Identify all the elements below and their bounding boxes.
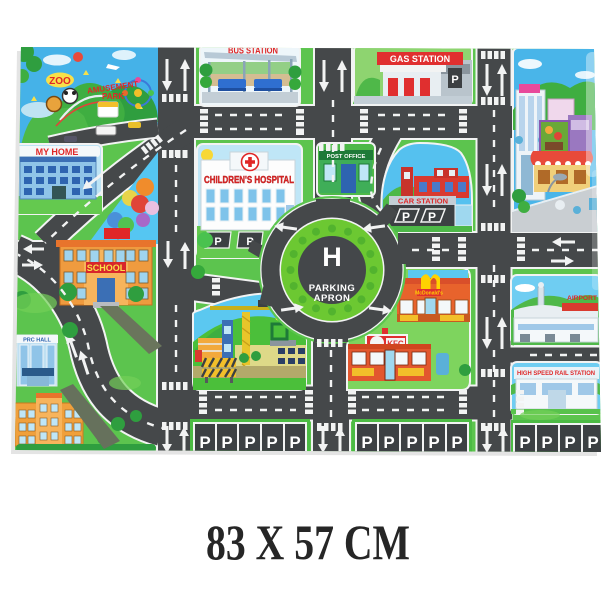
svg-text:MY HOME: MY HOME	[36, 147, 79, 157]
svg-text:APRON: APRON	[314, 293, 351, 304]
svg-text:P: P	[428, 433, 439, 452]
svg-text:PRC HALL: PRC HALL	[23, 338, 51, 344]
svg-text:H: H	[322, 242, 342, 272]
svg-text:ZOO: ZOO	[49, 76, 71, 87]
svg-text:McDonald's: McDonald's	[415, 291, 443, 297]
svg-text:P: P	[383, 433, 394, 452]
svg-text:SCHOOL: SCHOOL	[87, 263, 126, 273]
svg-text:CAR STATION: CAR STATION	[398, 197, 448, 206]
svg-text:P: P	[406, 433, 417, 452]
svg-text:GAS STATION: GAS STATION	[390, 54, 450, 64]
svg-text:P: P	[428, 210, 436, 224]
svg-text:P: P	[289, 433, 300, 452]
svg-text:P: P	[266, 433, 277, 452]
svg-text:P: P	[564, 433, 575, 452]
svg-text:HIGH SPEED RAIL STATION: HIGH SPEED RAIL STATION	[517, 370, 595, 377]
svg-text:P: P	[541, 433, 552, 452]
svg-text:P: P	[361, 433, 372, 452]
svg-text:P: P	[199, 433, 210, 452]
svg-text:P: P	[221, 433, 232, 452]
svg-text:P: P	[402, 210, 410, 224]
svg-text:83 X 57 CM: 83 X 57 CM	[206, 514, 410, 570]
svg-text:P: P	[451, 433, 462, 452]
svg-text:PARK: PARK	[102, 92, 124, 101]
svg-text:AIRPORT: AIRPORT	[567, 295, 597, 302]
svg-text:P: P	[451, 74, 458, 86]
svg-text:P: P	[587, 433, 598, 452]
svg-text:P: P	[519, 433, 530, 452]
svg-text:CHILDREN'S HOSPITAL: CHILDREN'S HOSPITAL	[204, 174, 294, 186]
svg-text:P: P	[244, 433, 255, 452]
svg-text:POST OFFICE: POST OFFICE	[327, 154, 366, 160]
svg-text:P: P	[214, 236, 221, 248]
